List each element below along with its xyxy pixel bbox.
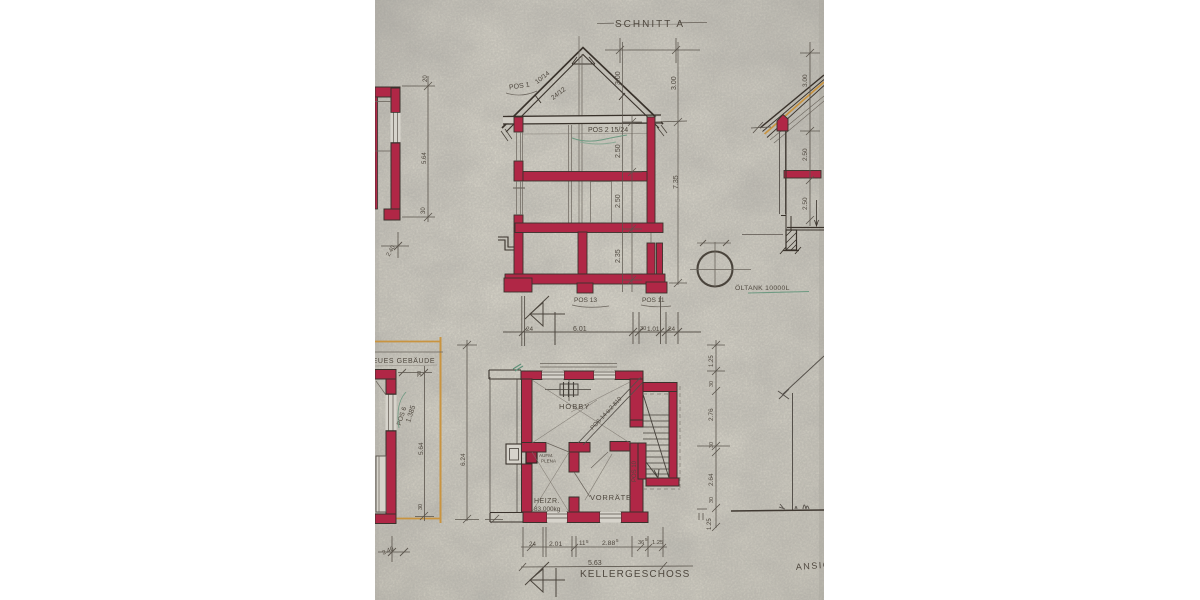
svg-text:7.35: 7.35 <box>673 175 680 189</box>
svg-text:HEIZR.: HEIZR. <box>534 498 560 505</box>
svg-text:30: 30 <box>417 371 423 377</box>
svg-text:11: 11 <box>579 540 586 547</box>
svg-text:ANSICH: ANSICH <box>795 559 824 572</box>
svg-text:ÖLTANK 10000L: ÖLTANK 10000L <box>735 284 790 292</box>
svg-text:2.50: 2.50 <box>615 194 622 208</box>
svg-text:2.88: 2.88 <box>602 540 615 547</box>
svg-text:30: 30 <box>709 381 715 387</box>
svg-text:POS 10: POS 10 <box>632 460 638 482</box>
svg-text:30: 30 <box>709 442 715 448</box>
svg-text:POS 2 15/24: POS 2 15/24 <box>588 127 628 134</box>
svg-text:20: 20 <box>423 75 429 82</box>
svg-text:30: 30 <box>418 504 424 510</box>
svg-text:1.01: 1.01 <box>647 326 660 333</box>
svg-text:1.25: 1.25 <box>707 518 713 530</box>
svg-text:6.01: 6.01 <box>573 326 587 333</box>
svg-text:2.50: 2.50 <box>615 144 622 158</box>
svg-text:AUFM.: AUFM. <box>539 453 553 458</box>
svg-text:30: 30 <box>421 207 427 214</box>
svg-text:36: 36 <box>638 540 644 546</box>
svg-text:3.00: 3.00 <box>615 71 622 85</box>
svg-text:24: 24 <box>668 326 676 333</box>
svg-text:SCHNITT A: SCHNITT A <box>615 19 685 30</box>
svg-text:1.25: 1.25 <box>709 355 715 367</box>
svg-text:3.00: 3.00 <box>671 76 678 90</box>
svg-text:24: 24 <box>526 326 534 333</box>
svg-text:VORRÄTE: VORRÄTE <box>590 493 632 502</box>
svg-text:5.64: 5.64 <box>422 152 428 164</box>
svg-text:30: 30 <box>640 326 646 332</box>
svg-text:2.35: 2.35 <box>615 249 622 263</box>
svg-text:2.50: 2.50 <box>802 197 809 210</box>
svg-text:24: 24 <box>529 541 536 548</box>
svg-text:2.76: 2.76 <box>708 408 715 421</box>
svg-text:3.00: 3.00 <box>802 74 809 87</box>
svg-text:5.64: 5.64 <box>418 442 425 455</box>
svg-text:2.64: 2.64 <box>708 473 715 486</box>
svg-text:2.50: 2.50 <box>802 148 809 161</box>
svg-text:1.25: 1.25 <box>652 540 663 546</box>
svg-text:KELLERGESCHOSS: KELLERGESCHOSS <box>580 569 690 580</box>
svg-text:HOBBY: HOBBY <box>559 402 590 411</box>
svg-text:PLENA: PLENA <box>541 459 557 464</box>
svg-text:POS 11: POS 11 <box>642 297 665 304</box>
svg-text:30: 30 <box>709 497 715 503</box>
svg-text:83.000kg: 83.000kg <box>534 506 561 513</box>
svg-text:6.24: 6.24 <box>460 453 467 466</box>
svg-text:POS 13: POS 13 <box>574 297 597 304</box>
svg-text:5.63: 5.63 <box>588 560 602 567</box>
svg-text:2.01: 2.01 <box>549 541 562 548</box>
svg-text:NEUES GEBÄUDE: NEUES GEBÄUDE <box>375 357 435 365</box>
